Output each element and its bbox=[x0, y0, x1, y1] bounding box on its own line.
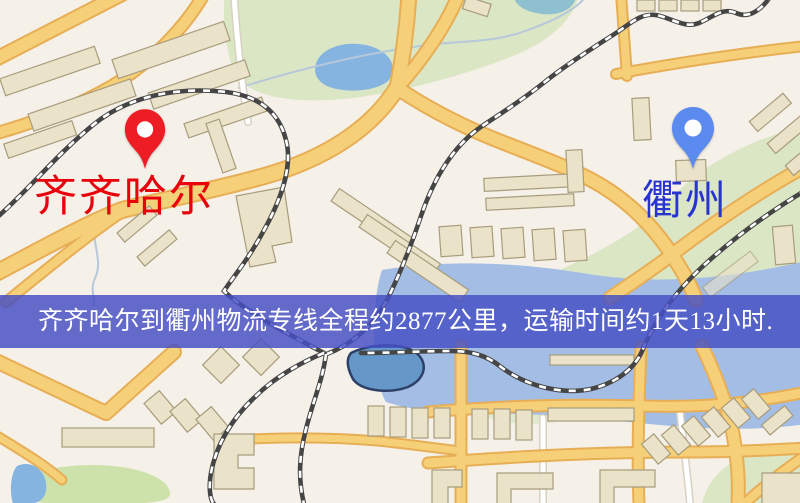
pin-body bbox=[672, 107, 714, 169]
map-canvas bbox=[0, 0, 800, 503]
origin-label: 齐齐哈尔 bbox=[34, 176, 214, 219]
pin-hole bbox=[137, 121, 153, 137]
pin-body bbox=[125, 109, 165, 168]
origin-marker bbox=[122, 106, 168, 172]
destination-marker bbox=[669, 104, 717, 172]
origin-pin-icon bbox=[122, 106, 168, 172]
route-info-text: 齐齐哈尔到衢州物流专线全程约2877公里，运输时间约1天13小时. bbox=[0, 295, 800, 349]
route-info-banner: 齐齐哈尔到衢州物流专线全程约2877公里，运输时间约1天13小时. bbox=[0, 295, 800, 348]
destination-pin-icon bbox=[669, 104, 717, 172]
map-screenshot: 齐齐哈尔 衢州 齐齐哈尔到衢州物流专线全程约2877公里，运输时间约1天13小时… bbox=[0, 0, 800, 503]
pin-hole bbox=[685, 120, 702, 137]
destination-label: 衢州 bbox=[642, 180, 728, 221]
